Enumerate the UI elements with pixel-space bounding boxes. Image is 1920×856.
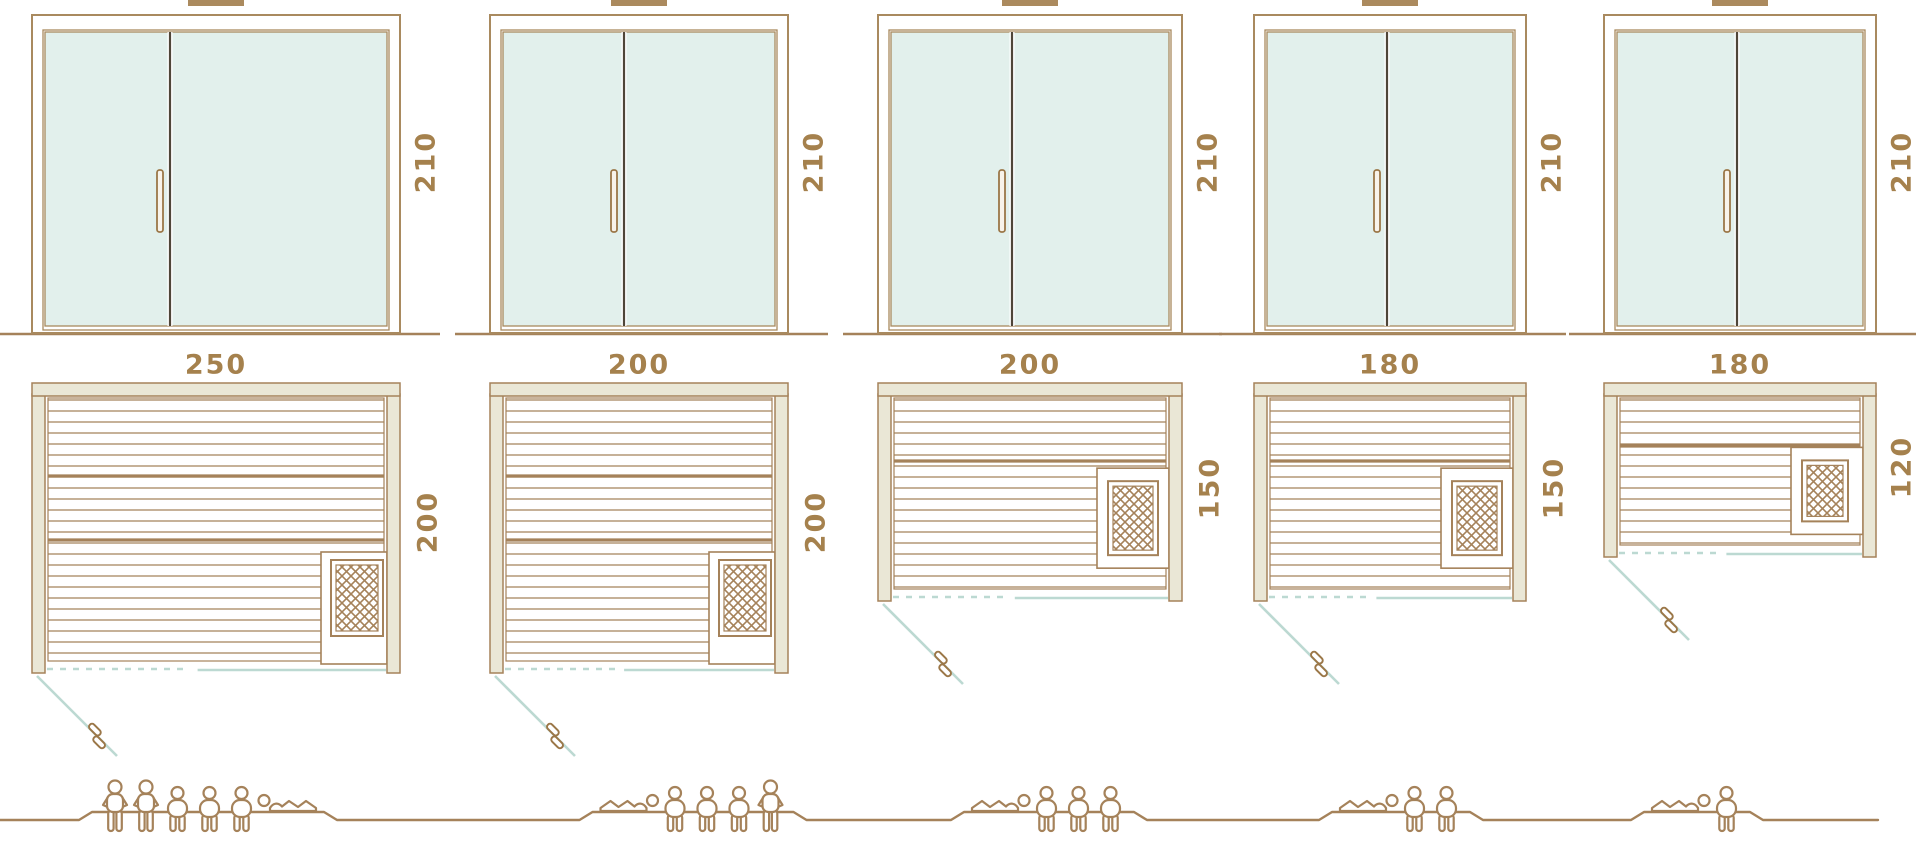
unit-column	[1219, 0, 1566, 684]
top-marker	[1712, 0, 1768, 6]
people-group	[1340, 787, 1456, 831]
top-marker	[611, 0, 667, 6]
person-sitting-icon	[232, 787, 251, 831]
plan-top-band	[1254, 383, 1526, 396]
plan-left-post	[32, 394, 45, 673]
floor-plan	[1604, 383, 1876, 640]
top-marker	[188, 0, 244, 6]
cabin-depth-label: 200	[801, 491, 832, 553]
top-marker	[1362, 0, 1418, 6]
door-height-label: 210	[411, 131, 442, 193]
person-lying-icon	[259, 795, 317, 811]
person-sitting-icon	[1101, 787, 1120, 831]
person-sitting-icon	[200, 787, 219, 831]
heater-icon	[331, 560, 383, 636]
unit-column	[843, 0, 1222, 684]
people-group	[1652, 787, 1736, 831]
person-sitting-icon	[666, 787, 685, 831]
person-standing-icon	[134, 781, 158, 832]
cabin-depth-label: 150	[1539, 456, 1570, 518]
plan-top-band	[878, 383, 1182, 396]
person-sitting-icon	[168, 787, 187, 831]
door-height-label: 210	[1193, 131, 1224, 193]
heater-icon	[1108, 481, 1158, 555]
glass-panels	[891, 32, 1169, 326]
cabin-width-label: 180	[1359, 350, 1421, 381]
person-sitting-icon	[1069, 787, 1088, 831]
capacity-figures-layer	[0, 770, 1920, 856]
door-elevation	[878, 15, 1182, 333]
door-handle-icon	[611, 170, 617, 232]
door-elevation	[1604, 15, 1876, 333]
door-height-label: 210	[1887, 131, 1918, 193]
door-elevation	[1254, 15, 1526, 333]
unit-column	[1569, 0, 1916, 640]
heater-icon	[1452, 481, 1502, 555]
person-standing-icon	[103, 781, 127, 832]
glass-panels	[45, 32, 387, 326]
cabin-depth-label: 120	[1887, 435, 1918, 497]
floor-plan	[32, 383, 400, 756]
plan-top-band	[490, 383, 788, 396]
glass-panels	[1267, 32, 1513, 326]
cabin-drawings-layer	[0, 0, 1920, 770]
person-sitting-icon	[1437, 787, 1456, 831]
door-elevation	[490, 15, 788, 333]
person-lying-icon	[1340, 795, 1398, 811]
plan-right-post	[775, 394, 788, 673]
plan-top-band	[32, 383, 400, 396]
heater-icon	[1802, 460, 1848, 521]
door-height-label: 210	[1537, 131, 1568, 193]
plan-left-post	[1604, 394, 1617, 557]
glass-panels	[1617, 32, 1863, 326]
top-marker	[1002, 0, 1058, 6]
glass-panels	[503, 32, 775, 326]
people-group	[972, 787, 1120, 831]
people-group	[103, 781, 316, 832]
floor-plan	[490, 383, 788, 756]
floor-plan	[878, 383, 1182, 684]
cabin-width-label: 200	[608, 350, 670, 381]
person-sitting-icon	[698, 787, 717, 831]
door-handle-icon	[999, 170, 1005, 232]
plan-left-post	[878, 394, 891, 601]
door-height-label: 210	[799, 131, 830, 193]
plan-left-post	[490, 394, 503, 673]
person-sitting-icon	[1405, 787, 1424, 831]
person-sitting-icon	[1717, 787, 1736, 831]
people-ground-line	[0, 812, 1878, 820]
person-standing-icon	[759, 781, 783, 832]
cabin-width-label: 200	[999, 350, 1061, 381]
plan-right-post	[1169, 394, 1182, 601]
cabin-width-label: 250	[185, 350, 247, 381]
person-lying-icon	[1652, 795, 1710, 811]
plan-right-post	[1863, 394, 1876, 557]
person-lying-icon	[601, 795, 659, 811]
plan-left-post	[1254, 394, 1267, 601]
person-sitting-icon	[730, 787, 749, 831]
door-handle-icon	[1374, 170, 1380, 232]
person-lying-icon	[972, 795, 1030, 811]
people-group	[601, 781, 783, 832]
cabin-width-label: 180	[1709, 350, 1771, 381]
sauna-size-comparison-diagram: 210 250 200 210 200 200 210 200 150 210 …	[0, 0, 1920, 856]
plan-right-post	[1513, 394, 1526, 601]
plan-right-post	[387, 394, 400, 673]
door-handle-icon	[157, 170, 163, 232]
plan-top-band	[1604, 383, 1876, 396]
cabin-depth-label: 200	[413, 491, 444, 553]
door-elevation	[32, 15, 400, 333]
floor-plan	[1254, 383, 1526, 684]
heater-icon	[719, 560, 771, 636]
cabin-depth-label: 150	[1195, 456, 1226, 518]
person-sitting-icon	[1037, 787, 1056, 831]
door-handle-icon	[1724, 170, 1730, 232]
